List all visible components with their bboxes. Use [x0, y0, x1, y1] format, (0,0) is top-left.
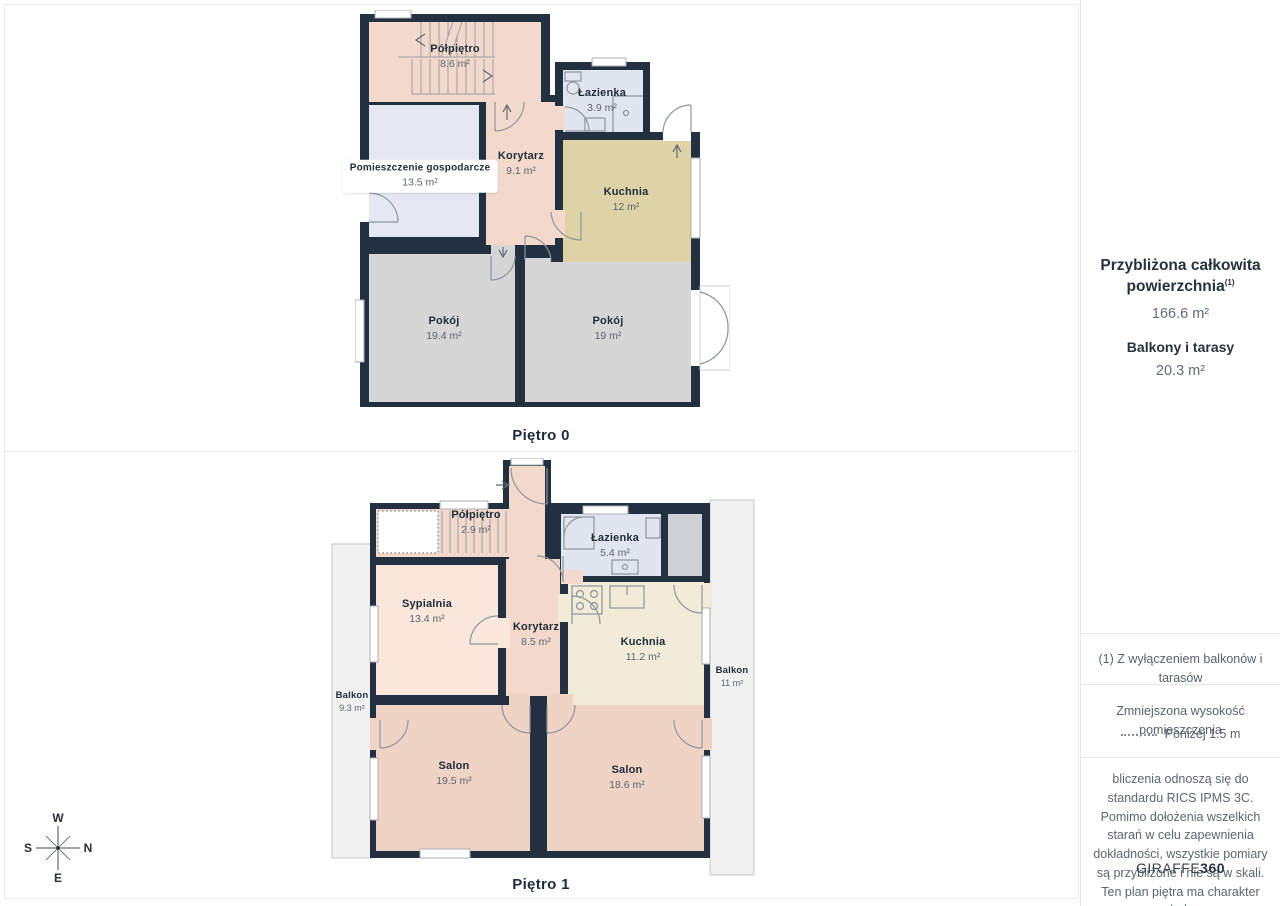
window: [702, 608, 710, 664]
total-area-block: Przybliżona całkowita powierzchnia(1) 16…: [1081, 256, 1280, 379]
room-label-balkon-right: Balkon 11 m²: [716, 665, 749, 689]
window: [583, 506, 628, 514]
dotted-line-sample: [1121, 734, 1157, 736]
footnote-text: (1) Z wyłączeniem balkonów i tarasów: [1089, 650, 1272, 688]
compass-north-label: N: [84, 841, 93, 855]
room-label-kuchnia-0: Kuchnia 12 m²: [604, 186, 649, 214]
floor-plan-pietro-0: [355, 10, 730, 410]
room-label-lazienka-0: Łazienka 3.9 m²: [578, 87, 626, 115]
summary-sidebar: Przybliżona całkowita powierzchnia(1) 16…: [1080, 0, 1280, 906]
footnote-marker: (1): [1225, 278, 1235, 287]
room-label-polpietro-1: Półpiętro 2.9 m²: [451, 509, 500, 537]
total-area-value: 166.6 m²: [1081, 306, 1280, 322]
compass-west-label: W: [52, 811, 64, 825]
balconies-value: 20.3 m²: [1081, 363, 1280, 379]
window: [370, 606, 378, 662]
room-label-polpietro-0: Półpiętro 8.6 m²: [430, 43, 479, 71]
room-label-salon-left: Salon 19.5 m²: [436, 760, 472, 788]
floor-plan-pietro-1: [328, 458, 758, 878]
divider: [1081, 633, 1280, 634]
divider: [1081, 684, 1280, 685]
room-label-balkon-left: Balkon 9.3 m²: [336, 690, 369, 714]
disclaimer-text: bliczenia odnoszą się do standardu RICS …: [1093, 770, 1268, 906]
window: [370, 758, 378, 820]
compass-rose-icon: W N S E: [20, 810, 96, 886]
closet: [668, 514, 702, 576]
reduced-height-area: [378, 511, 438, 553]
compass-east-label: E: [54, 871, 62, 885]
floor1-title: Piętro 1: [512, 876, 569, 893]
window: [420, 849, 470, 858]
window: [440, 501, 488, 509]
room-label-pokoj-right: Pokój 19 m²: [593, 315, 624, 343]
room-label-salon-right: Salon 18.6 m²: [609, 764, 645, 792]
window: [592, 58, 626, 66]
room-label-sypialnia: Sypialnia 13.4 m²: [402, 598, 452, 626]
window: [355, 300, 364, 362]
window: [511, 458, 543, 465]
compass-south-label: S: [24, 841, 32, 855]
front-door-arc: [663, 105, 691, 132]
room-label-korytarz-1: Korytarz 8.5 m²: [513, 621, 559, 649]
room-label-lazienka-1: Łazienka 5.4 m²: [591, 532, 639, 560]
divider: [1081, 757, 1280, 758]
room-label-korytarz-0: Korytarz 9.1 m²: [498, 150, 544, 178]
entry-landing: [509, 466, 545, 518]
giraffe360-logo: GIRAFFE360: [1081, 860, 1280, 876]
room-label-pokoj-left: Pokój 19.4 m²: [426, 315, 462, 343]
window: [702, 756, 710, 818]
room-sypialnia: [376, 565, 498, 695]
floorplan-page: Półpiętro 8.6 m² Łazienka 3.9 m² Pomiesz…: [0, 0, 1280, 906]
window: [691, 158, 700, 238]
balconies-label: Balkony i tarasy: [1081, 339, 1280, 355]
total-area-title: Przybliżona całkowita powierzchnia(1): [1081, 256, 1280, 298]
room-label-pomieszczenie: Pomieszczenie gospodarcze 13.5 m²: [343, 160, 498, 193]
window: [375, 10, 411, 18]
room-label-kuchnia-1: Kuchnia 11.2 m²: [621, 636, 666, 664]
floor0-title: Piętro 0: [512, 427, 569, 444]
reduced-height-legend: Poniżej 1.5 m: [1089, 725, 1272, 744]
